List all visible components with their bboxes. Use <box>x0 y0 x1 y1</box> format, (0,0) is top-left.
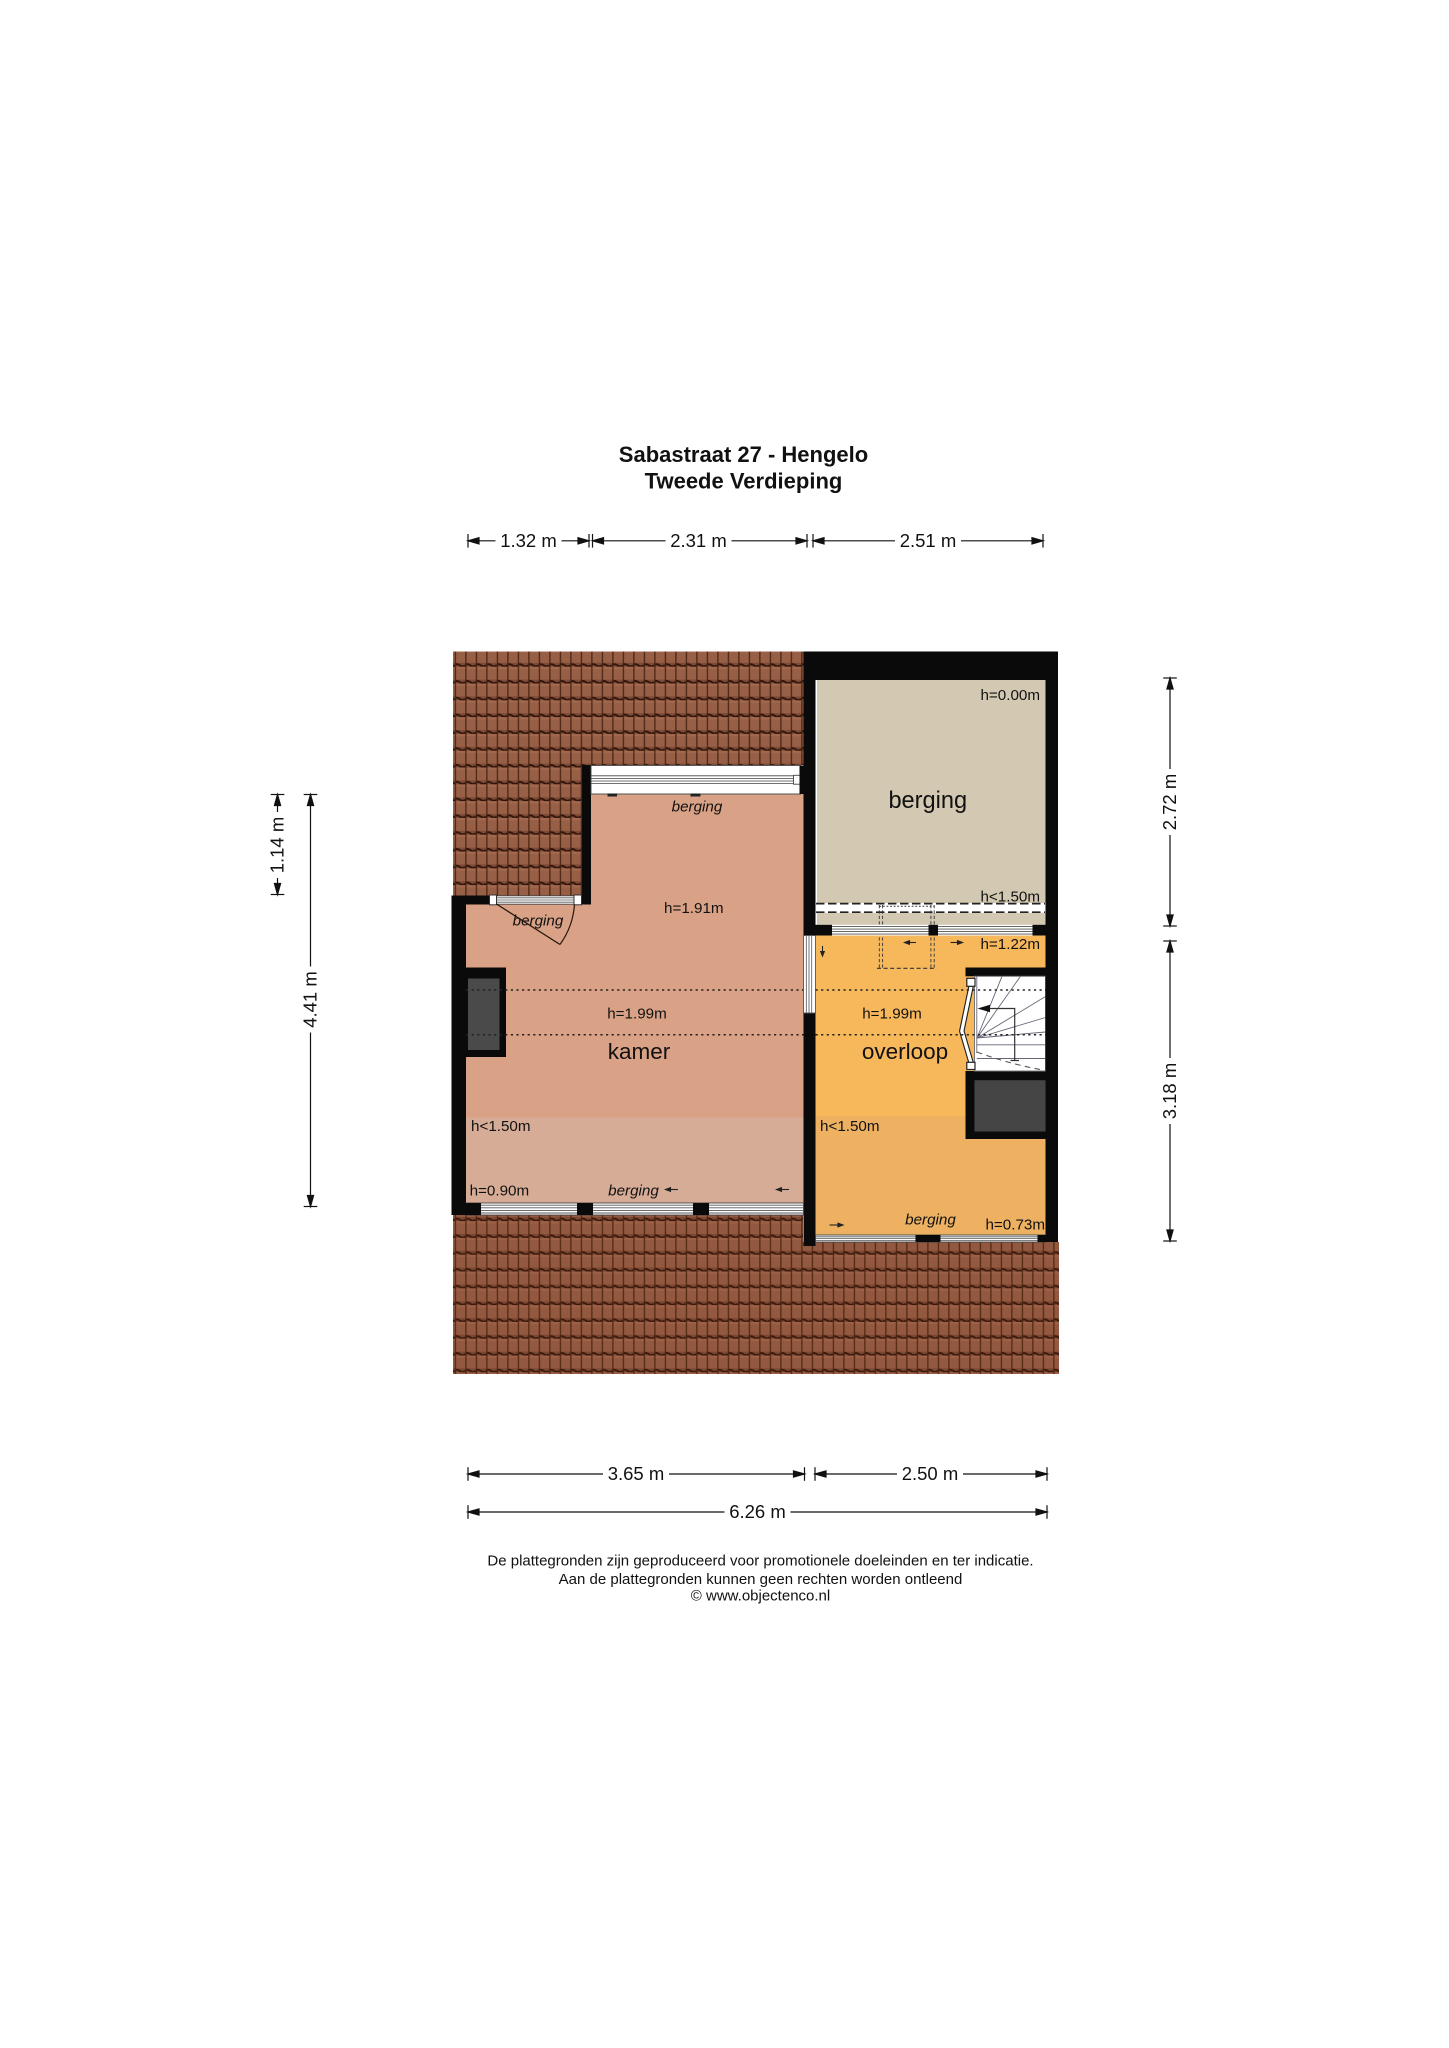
svg-text:h=1.22m: h=1.22m <box>980 936 1040 953</box>
svg-text:Tweede Verdieping: Tweede Verdieping <box>645 469 843 494</box>
svg-text:berging: berging <box>672 799 723 816</box>
svg-text:2.51 m: 2.51 m <box>900 530 957 551</box>
svg-text:kamer: kamer <box>608 1039 671 1064</box>
svg-text:h<1.50m: h<1.50m <box>820 1118 880 1135</box>
svg-text:2.50 m: 2.50 m <box>902 1463 959 1484</box>
svg-text:4.41 m: 4.41 m <box>300 971 321 1028</box>
svg-text:6.26 m: 6.26 m <box>729 1501 786 1522</box>
svg-text:h=1.91m: h=1.91m <box>664 900 724 917</box>
svg-text:berging: berging <box>513 913 564 930</box>
svg-text:2.72 m: 2.72 m <box>1159 774 1180 831</box>
svg-text:h=1.99m: h=1.99m <box>862 1006 922 1023</box>
svg-text:1.14 m: 1.14 m <box>267 817 288 874</box>
svg-text:overloop: overloop <box>862 1039 948 1064</box>
svg-text:h=0.00m: h=0.00m <box>980 687 1040 704</box>
svg-text:Aan de plattegronden kunnen ge: Aan de plattegronden kunnen geen rechten… <box>559 1571 963 1588</box>
svg-text:3.18 m: 3.18 m <box>1159 1063 1180 1120</box>
svg-text:h<1.50m: h<1.50m <box>471 1118 531 1135</box>
svg-text:h=0.90m: h=0.90m <box>470 1183 530 1200</box>
svg-text:1.32 m: 1.32 m <box>500 530 557 551</box>
svg-text:h<1.50m: h<1.50m <box>980 889 1040 906</box>
svg-text:berging: berging <box>608 1183 659 1200</box>
svg-text:© www.objectenco.nl: © www.objectenco.nl <box>691 1588 830 1605</box>
svg-text:3.65 m: 3.65 m <box>608 1463 665 1484</box>
svg-text:berging: berging <box>905 1212 956 1229</box>
svg-text:De plattegronden zijn geproduc: De plattegronden zijn geproduceerd voor … <box>487 1553 1033 1570</box>
svg-text:Sabastraat 27 - Hengelo: Sabastraat 27 - Hengelo <box>619 442 868 467</box>
svg-text:h=1.99m: h=1.99m <box>607 1006 667 1023</box>
svg-text:2.31 m: 2.31 m <box>670 530 727 551</box>
svg-text:h=0.73m: h=0.73m <box>985 1217 1045 1234</box>
svg-text:berging: berging <box>888 788 967 814</box>
